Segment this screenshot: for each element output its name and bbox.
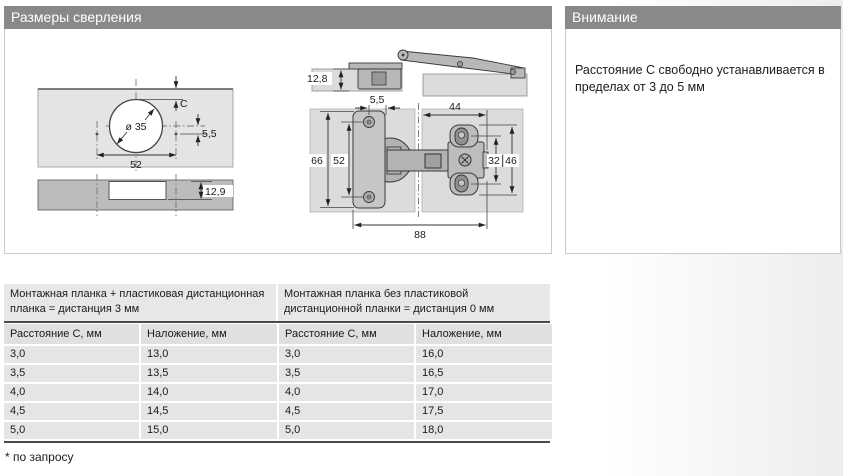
drilling-panel-body: ø 35 C 5,5 52 [5,29,551,251]
table-cell: 17,5 [416,403,552,420]
dim-label-milling-depth: 12,9 [205,186,226,198]
dim-label-distance-c: C [180,98,188,110]
dim-label-front-offset: 5,5 [202,128,217,140]
table-cell: 15,0 [141,422,277,439]
attention-panel-body: Расстояние С свободно устанавливается в … [566,62,840,284]
table-cell: 18,0 [416,422,552,439]
table-row: 3,0 13,0 3,0 16,0 [4,346,550,363]
hinge-arm-top [387,150,455,171]
table-cell: 14,5 [141,403,277,420]
attention-panel: Внимание Расстояние С свободно устанавли… [565,6,841,254]
table-cell: 5,0 [4,422,139,439]
edge-view-drawing: 12,9 [38,174,233,216]
column-header: Наложение, мм [416,324,552,344]
footnote: * по запросу [5,450,74,464]
table-row: 5,0 15,0 5,0 18,0 [4,422,550,439]
table-cell: 13,5 [141,365,277,382]
table-cell: 16,5 [416,365,552,382]
table-group-header-row: Монтажная планка + пластиковая дистанцио… [4,284,550,321]
table-cell: 3,5 [279,365,414,382]
table-cell: 3,0 [279,346,414,363]
dim-label-cup-depth: 12,8 [307,73,328,85]
attention-panel-title: Внимание [565,6,841,29]
dim-label-hole-spacing: 52 [130,159,142,171]
table-cell: 4,0 [4,384,139,401]
drilling-dimensions-panel: Размеры сверления ø 35 C [4,6,552,254]
dim-label-arm-width: 44 [449,101,461,113]
hinge-side-view-drawing: 12,8 [305,50,527,96]
table-cell: 4,0 [279,384,414,401]
table-cell: 4,5 [279,403,414,420]
table-cell: 3,0 [4,346,139,363]
group-header-with-spacer: Монтажная планка + пластиковая дистанцио… [4,284,276,321]
dim-label-top-offset: 5,5 [370,94,385,106]
attention-note: Расстояние С свободно устанавливается в … [575,62,830,96]
overlay-table: Монтажная планка + пластиковая дистанцио… [4,284,550,443]
column-header: Расстояние С, мм [279,324,414,344]
group-header-without-spacer: Монтажная планка без пластиковой дистанц… [278,284,550,321]
dim-label-top-hole-spacing: 52 [333,155,345,167]
drilling-drawing: ø 35 C 5,5 52 [5,29,551,251]
dim-label-plate-height: 66 [311,155,323,167]
dim-label-total-length: 88 [414,229,426,241]
table-rule-bottom [4,441,550,443]
table-cell: 16,0 [416,346,552,363]
table-cell: 17,0 [416,384,552,401]
hinge-top-view-drawing: 5,5 44 66 52 [309,94,523,241]
table-column-header-row: Расстояние С, мм Наложение, мм Расстояни… [4,324,550,344]
column-header: Расстояние С, мм [4,324,139,344]
table-cell: 13,0 [141,346,277,363]
table-cell: 5,0 [279,422,414,439]
table-cell: 3,5 [4,365,139,382]
table-cell: 14,0 [141,384,277,401]
dim-label-cup-diameter: ø 35 [125,121,146,133]
table-row: 4,5 14,5 4,5 17,5 [4,403,550,420]
dim-label-plate-outer: 46 [505,155,517,167]
table-row: 4,0 14,0 4,0 17,0 [4,384,550,401]
table-rule-top [4,321,550,323]
front-view-drawing: ø 35 C 5,5 52 [38,76,233,173]
table-cell: 4,5 [4,403,139,420]
table-row: 3,5 13,5 3,5 16,5 [4,365,550,382]
column-header: Наложение, мм [141,324,277,344]
drilling-panel-title: Размеры сверления [4,6,552,29]
dim-label-slot-spacing: 32 [488,155,500,167]
